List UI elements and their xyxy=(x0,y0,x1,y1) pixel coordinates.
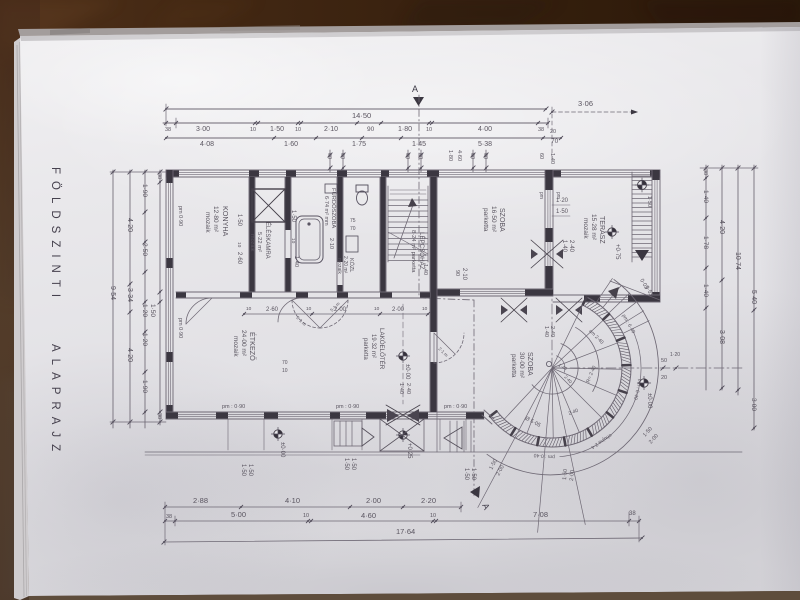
svg-text:8·24 m² parketta: 8·24 m² parketta xyxy=(410,230,416,273)
svg-text:16·50 m²: 16·50 m² xyxy=(490,206,497,233)
svg-text:mozaik: mozaik xyxy=(232,336,239,357)
svg-text:1·50: 1·50 xyxy=(350,458,356,471)
svg-text:1·50: 1·50 xyxy=(236,214,242,227)
svg-text:ALAPRAJZ: ALAPRAJZ xyxy=(49,344,61,458)
svg-text:KONYHA: KONYHA xyxy=(221,206,230,237)
svg-text:1·60: 1·60 xyxy=(284,141,298,148)
svg-text:38: 38 xyxy=(156,413,162,419)
svg-text:1·40: 1·40 xyxy=(543,326,549,337)
svg-text:1·50: 1·50 xyxy=(470,468,476,481)
svg-text:38: 38 xyxy=(156,173,162,179)
svg-text:6·74 m² mm: 6·74 m² mm xyxy=(323,196,329,226)
svg-text:60: 60 xyxy=(482,153,488,159)
svg-text:mozaik: mozaik xyxy=(204,212,211,233)
svg-text:parketta: parketta xyxy=(482,208,489,232)
svg-text:A: A xyxy=(412,84,418,94)
svg-text:7·08: 7·08 xyxy=(533,510,548,519)
svg-text:pm : 0·90: pm : 0·90 xyxy=(336,404,359,410)
svg-text:4·60: 4·60 xyxy=(361,511,376,520)
svg-text:1·78: 1·78 xyxy=(702,236,709,249)
svg-text:1·50: 1·50 xyxy=(247,464,253,477)
svg-text:1·50: 1·50 xyxy=(343,458,349,471)
svg-text:1·40: 1·40 xyxy=(702,284,709,297)
svg-text:mozaik: mozaik xyxy=(249,234,255,252)
svg-text:9·54: 9·54 xyxy=(109,286,116,300)
svg-text:1·50: 1·50 xyxy=(646,196,652,207)
svg-text:parketta: parketta xyxy=(362,338,368,360)
svg-text:2·20: 2·20 xyxy=(421,496,436,505)
svg-text:1·50: 1·50 xyxy=(290,210,296,223)
svg-text:mozaik: mozaik xyxy=(582,218,589,239)
svg-text:10: 10 xyxy=(306,306,312,312)
svg-text:1·90: 1·90 xyxy=(141,184,148,197)
svg-text:10: 10 xyxy=(303,513,309,519)
svg-text:3·00: 3·00 xyxy=(196,126,210,133)
svg-text:1·50: 1·50 xyxy=(240,464,246,477)
svg-text:TERASZ: TERASZ xyxy=(598,216,605,244)
svg-text:60: 60 xyxy=(326,153,332,159)
svg-text:1·20: 1·20 xyxy=(141,304,148,317)
svg-text:2·10: 2·10 xyxy=(328,238,334,249)
svg-text:4·20: 4·20 xyxy=(126,218,133,232)
svg-text:2·10: 2·10 xyxy=(461,268,467,281)
svg-text:10: 10 xyxy=(236,242,242,248)
svg-text:pm : 0·90: pm : 0·90 xyxy=(222,404,245,410)
svg-text:20: 20 xyxy=(661,375,667,381)
svg-text:2·88: 2·88 xyxy=(193,496,208,505)
svg-text:4·60: 4·60 xyxy=(456,150,462,161)
svg-text:1·50: 1·50 xyxy=(556,209,569,215)
svg-text:1·40: 1·40 xyxy=(561,240,567,253)
svg-text:1·75: 1·75 xyxy=(352,141,366,148)
svg-text:19·32 m²: 19·32 m² xyxy=(370,334,376,358)
svg-text:60: 60 xyxy=(417,153,423,159)
svg-text:10: 10 xyxy=(246,306,252,312)
svg-text:2·40: 2·40 xyxy=(568,240,574,253)
svg-text:±0·00: ±0·00 xyxy=(646,393,652,409)
svg-text:3·00: 3·00 xyxy=(750,398,757,411)
svg-text:ÉTKEZŐ: ÉTKEZŐ xyxy=(248,332,257,361)
svg-text:38: 38 xyxy=(538,127,544,133)
svg-text:75: 75 xyxy=(350,218,356,224)
svg-text:SZOBA: SZOBA xyxy=(526,352,533,376)
svg-text:10: 10 xyxy=(374,306,380,312)
svg-text:50: 50 xyxy=(661,358,667,364)
svg-text:24·00 m²: 24·00 m² xyxy=(240,330,247,357)
svg-text:4·10: 4·10 xyxy=(285,496,300,505)
svg-text:12·80 m²: 12·80 m² xyxy=(212,206,219,233)
svg-text:1·20: 1·20 xyxy=(670,352,680,358)
svg-text:FÖLDSZINTI: FÖLDSZINTI xyxy=(49,167,61,304)
svg-text:pm 0·90: pm 0·90 xyxy=(177,318,183,338)
svg-text:5·22 m²: 5·22 m² xyxy=(256,232,262,252)
svg-text:2·40: 2·40 xyxy=(405,383,411,394)
svg-text:2·60: 2·60 xyxy=(236,252,242,265)
svg-text:2·00: 2·00 xyxy=(392,307,405,313)
svg-text:2·60: 2·60 xyxy=(266,307,279,313)
svg-text:4·08: 4·08 xyxy=(200,141,214,148)
svg-text:2·50: 2·50 xyxy=(141,243,148,256)
svg-text:3·08: 3·08 xyxy=(718,330,725,344)
svg-text:5·00: 5·00 xyxy=(231,510,246,519)
svg-text:1·80: 1·80 xyxy=(447,150,453,161)
svg-text:1·50: 1·50 xyxy=(270,126,284,133)
svg-text:1·40: 1·40 xyxy=(549,153,555,164)
svg-text:4·20: 4·20 xyxy=(126,348,133,362)
svg-text:60: 60 xyxy=(339,153,345,159)
svg-text:70: 70 xyxy=(282,360,288,366)
svg-text:SZOBA: SZOBA xyxy=(498,208,505,232)
svg-text:3·06: 3·06 xyxy=(578,99,593,108)
svg-text:1·50: 1·50 xyxy=(463,468,469,481)
svg-text:1·50: 1·50 xyxy=(562,469,569,480)
svg-text:38: 38 xyxy=(702,169,708,175)
svg-text:20: 20 xyxy=(550,129,556,135)
svg-text:5·40: 5·40 xyxy=(750,290,757,304)
svg-text:38: 38 xyxy=(629,511,636,517)
svg-text:±0·00: ±0·00 xyxy=(404,364,410,380)
svg-text:14·50: 14·50 xyxy=(352,111,371,120)
svg-text:+0·75: +0·75 xyxy=(614,244,620,260)
svg-text:17·64: 17·64 xyxy=(396,527,415,536)
svg-text:2·00: 2·00 xyxy=(334,307,347,313)
svg-text:1·40: 1·40 xyxy=(293,256,299,267)
svg-text:10: 10 xyxy=(426,127,432,133)
svg-text:pm : 0·90: pm : 0·90 xyxy=(444,404,467,410)
svg-text:10: 10 xyxy=(430,513,436,519)
svg-text:90: 90 xyxy=(454,270,460,276)
svg-text:2·00: 2·00 xyxy=(366,496,381,505)
svg-text:FÜRDŐSZOBA: FÜRDŐSZOBA xyxy=(330,188,337,228)
svg-text:10: 10 xyxy=(422,306,428,312)
svg-text:38: 38 xyxy=(166,514,172,520)
svg-text:60: 60 xyxy=(404,153,410,159)
svg-text:pm: pm xyxy=(538,192,544,199)
svg-text:2·40: 2·40 xyxy=(549,326,555,337)
svg-text:3·34: 3·34 xyxy=(126,288,133,302)
svg-text:10: 10 xyxy=(282,368,288,374)
svg-text:60: 60 xyxy=(538,153,544,159)
svg-text:30·00 m²: 30·00 m² xyxy=(518,352,525,379)
svg-text:4·20: 4·20 xyxy=(718,220,725,234)
svg-text:90: 90 xyxy=(367,126,375,133)
svg-text:4·00: 4·00 xyxy=(478,126,492,133)
svg-text:1·40: 1·40 xyxy=(422,264,428,275)
svg-text:2·00: 2·00 xyxy=(569,470,576,481)
svg-text:10: 10 xyxy=(250,127,256,133)
svg-text:10: 10 xyxy=(290,238,296,244)
svg-text:±0·00: ±0·00 xyxy=(279,442,285,458)
svg-text:1·20: 1·20 xyxy=(141,333,148,346)
svg-text:parketta: parketta xyxy=(510,354,517,378)
svg-text:1·20: 1·20 xyxy=(556,198,569,204)
svg-text:1·80: 1·80 xyxy=(398,126,412,133)
svg-text:KÖZL: KÖZL xyxy=(348,258,355,272)
svg-text:pm 0·90: pm 0·90 xyxy=(177,206,183,226)
svg-text:ÉLÉSKAMRA: ÉLÉSKAMRA xyxy=(264,222,271,259)
svg-text:1·90: 1·90 xyxy=(141,380,148,393)
svg-text:1·40: 1·40 xyxy=(702,190,709,203)
svg-text:1·50: 1·50 xyxy=(149,304,156,317)
svg-text:10·74: 10·74 xyxy=(734,252,741,270)
svg-text:mozaik: mozaik xyxy=(336,258,342,274)
svg-text:38: 38 xyxy=(165,127,171,133)
svg-text:2·10: 2·10 xyxy=(324,126,338,133)
svg-text:15·28 m²: 15·28 m² xyxy=(590,214,597,241)
svg-text:10: 10 xyxy=(295,127,301,133)
svg-text:70: 70 xyxy=(350,226,356,232)
svg-text:60: 60 xyxy=(469,153,475,159)
svg-text:5·38: 5·38 xyxy=(478,141,492,148)
svg-text:LAKÓELŐTÉR: LAKÓELŐTÉR xyxy=(378,328,385,370)
